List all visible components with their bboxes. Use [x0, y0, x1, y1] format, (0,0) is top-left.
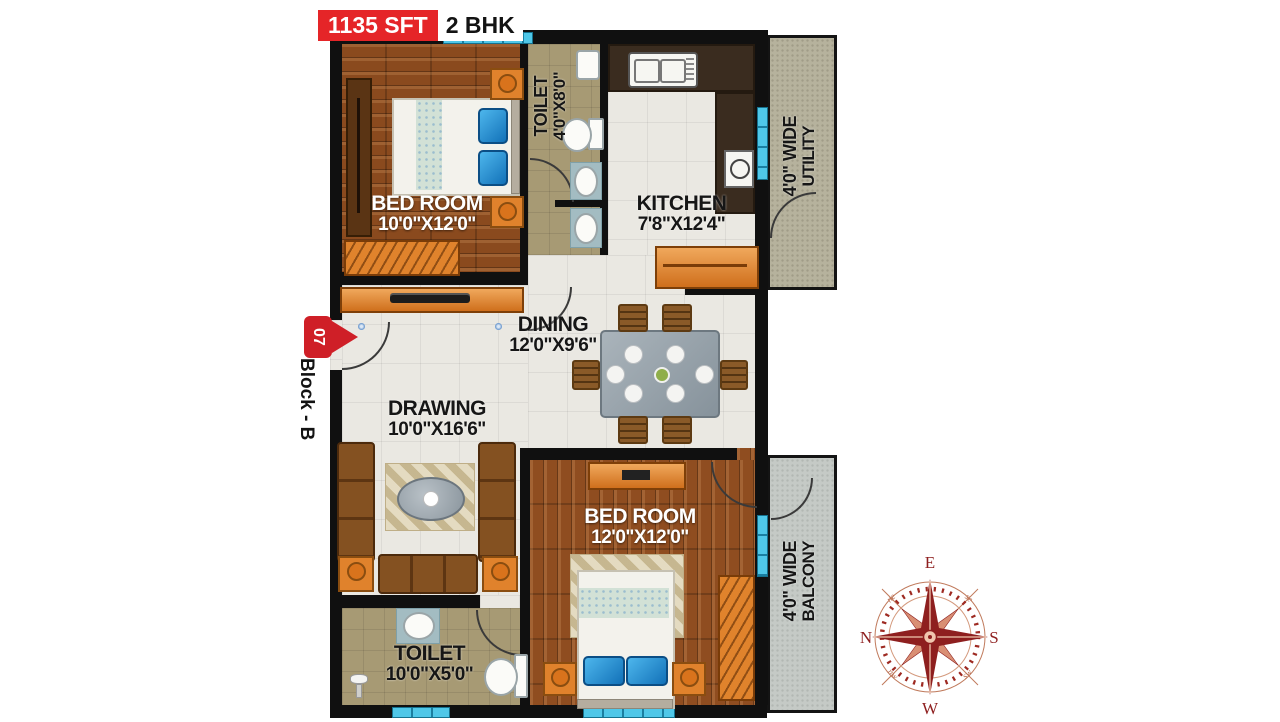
toilet2-basin: [403, 612, 435, 640]
label-dining: DINING 12'0"X9'6": [478, 314, 628, 356]
room-name: DRAWING: [347, 398, 527, 420]
room-name: DINING: [478, 314, 628, 336]
room-name: BED ROOM: [550, 506, 730, 528]
room-size: 12'0"X12'0": [550, 528, 730, 548]
bed-pillow: [583, 656, 625, 686]
bhk-label: 2 BHK: [438, 10, 523, 41]
window-bedroom2-right: [757, 515, 768, 577]
label-toilet1: TOILET 4'0"X8'0": [532, 31, 568, 181]
bedroom2-bed: [577, 570, 675, 709]
compass-rose-icon: E S W N ne se nw sw: [855, 552, 1005, 722]
bed-headboard: [577, 699, 673, 709]
kitchen-hob: [724, 150, 754, 188]
toilet2-basin-tile: [396, 608, 440, 644]
wash-basin: [574, 213, 598, 244]
bedroom2-dresser: [588, 462, 686, 490]
label-bedroom1: BED ROOM 10'0"X12'0": [338, 193, 516, 235]
hob-burner: [730, 159, 750, 179]
shower-stem: [356, 684, 362, 698]
toilet1-basin-tile: [570, 162, 602, 200]
bed-runner: [416, 100, 442, 190]
label-bedroom2: BED ROOM 12'0"X12'0": [550, 506, 730, 548]
plate: [695, 365, 714, 384]
window-kitchen-right: [757, 107, 768, 180]
coffee-table: [397, 477, 465, 521]
toilet2-door-opening: [480, 595, 520, 608]
room-size: 12'0"X9'6": [478, 336, 628, 356]
room-size: 10'0"X16'6": [347, 420, 527, 440]
room-name: TOILET: [532, 31, 551, 181]
side-table: [482, 556, 518, 592]
kitchen-cabinet: [655, 246, 759, 289]
sink-drainboard: [686, 58, 694, 80]
bedroom1-bed: [392, 98, 520, 196]
sofa-bottom: [378, 554, 478, 594]
bed-runner: [579, 588, 669, 618]
window-toilet2-bottom: [392, 707, 450, 718]
bed-pillow: [478, 108, 508, 144]
plate: [606, 365, 625, 384]
room-size: 10'0"X5'0": [342, 665, 517, 685]
dresser-mirror: [622, 470, 650, 480]
label-kitchen: KITCHEN 7'8"X12'4": [608, 193, 755, 235]
room-name: 4'0" WIDE: [781, 506, 800, 656]
plate: [666, 384, 685, 403]
sink-basin: [660, 59, 686, 83]
wall-left-upper: [330, 30, 342, 320]
block-label-text: Block - B: [295, 358, 317, 440]
wall-toilet2-top: [342, 595, 480, 608]
block-number: 07: [309, 328, 327, 346]
kitchen-sink: [628, 52, 698, 88]
bedroom1-nightstand: [490, 68, 524, 100]
side-table: [338, 556, 374, 592]
plan-header: 1135 SFT 2 BHK: [318, 10, 523, 41]
room-name: TOILET: [342, 643, 517, 665]
room-name: BED ROOM: [338, 193, 516, 215]
room-size: 7'8"X12'4": [608, 215, 755, 235]
bedroom2-nightstand: [543, 662, 577, 696]
tv-console: [340, 287, 524, 313]
room-size: 10'0"X12'0": [338, 215, 516, 235]
room-size: 4'0"X8'0": [551, 31, 569, 181]
bed-pillow: [626, 656, 668, 686]
compass-north: N: [860, 628, 872, 647]
block-label: Block - B: [295, 358, 339, 445]
plate: [624, 384, 643, 403]
cabinet-line: [663, 264, 747, 267]
entry-arrow-icon: [332, 321, 358, 353]
toilet1-basin: [574, 166, 598, 197]
compass-west: W: [922, 699, 939, 717]
compass-east: E: [925, 553, 935, 572]
bedroom2-nightstand: [672, 662, 706, 696]
bedroom2-door-opening: [737, 448, 755, 460]
toilet1-shelf: [576, 50, 600, 80]
room-name: UTILITY: [800, 81, 818, 231]
dining-chair: [662, 416, 692, 444]
label-drawing: DRAWING 10'0"X16'6": [347, 398, 527, 440]
sofa-left: [337, 442, 375, 562]
wall-dining-bedroom2: [528, 448, 737, 460]
block-number-badge: 07: [304, 316, 332, 358]
flower-decor: [358, 323, 365, 330]
dining-chair: [618, 416, 648, 444]
label-toilet2: TOILET 10'0"X5'0": [342, 643, 517, 685]
room-name: BALCONY: [800, 506, 818, 656]
bedroom2-wardrobe: [718, 575, 755, 701]
coffee-table-plate: [423, 491, 439, 507]
plate: [666, 345, 685, 364]
dining-chair: [572, 360, 600, 390]
label-balcony: 4'0" WIDE BALCONY: [781, 506, 817, 656]
bed-headboard: [511, 98, 520, 194]
area-badge: 1135 SFT: [318, 10, 438, 41]
dining-chair: [662, 304, 692, 332]
bedroom1-dresser: [344, 240, 460, 276]
sofa-right: [478, 442, 516, 562]
dining-chair: [720, 360, 748, 390]
label-utility: 4'0" WIDE UTILITY: [781, 81, 817, 231]
compass-south: S: [989, 628, 998, 647]
tv: [390, 295, 470, 303]
floor-plan: BED ROOM 10'0"X12'0" TOILET 4'0"X8'0" KI…: [330, 30, 842, 718]
sink-basin: [634, 59, 660, 83]
wash-basin-tile: [570, 208, 602, 248]
centerpiece: [654, 367, 670, 383]
room-name: 4'0" WIDE: [781, 81, 800, 231]
room-name: KITCHEN: [608, 193, 755, 215]
bed-pillow: [478, 150, 508, 186]
